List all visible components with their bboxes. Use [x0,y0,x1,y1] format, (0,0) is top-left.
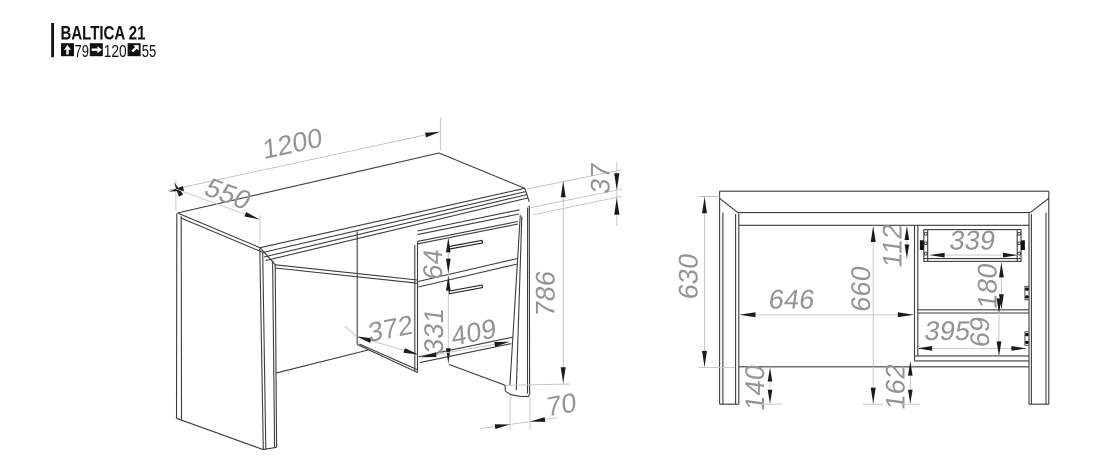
svg-text:140: 140 [739,362,770,412]
svg-text:55: 55 [142,41,157,61]
svg-text:331: 331 [418,306,449,356]
svg-text:646: 646 [767,284,817,315]
svg-text:37: 37 [585,161,616,196]
svg-text:630: 630 [673,251,704,301]
svg-text:64: 64 [417,247,448,282]
svg-text:786: 786 [530,268,561,318]
svg-text:120: 120 [104,41,127,61]
svg-text:79: 79 [75,41,90,61]
svg-text:660: 660 [845,264,876,314]
svg-text:339: 339 [948,225,998,256]
svg-text:70: 70 [546,386,577,422]
svg-text:112: 112 [877,221,908,269]
svg-text:69: 69 [964,314,995,349]
